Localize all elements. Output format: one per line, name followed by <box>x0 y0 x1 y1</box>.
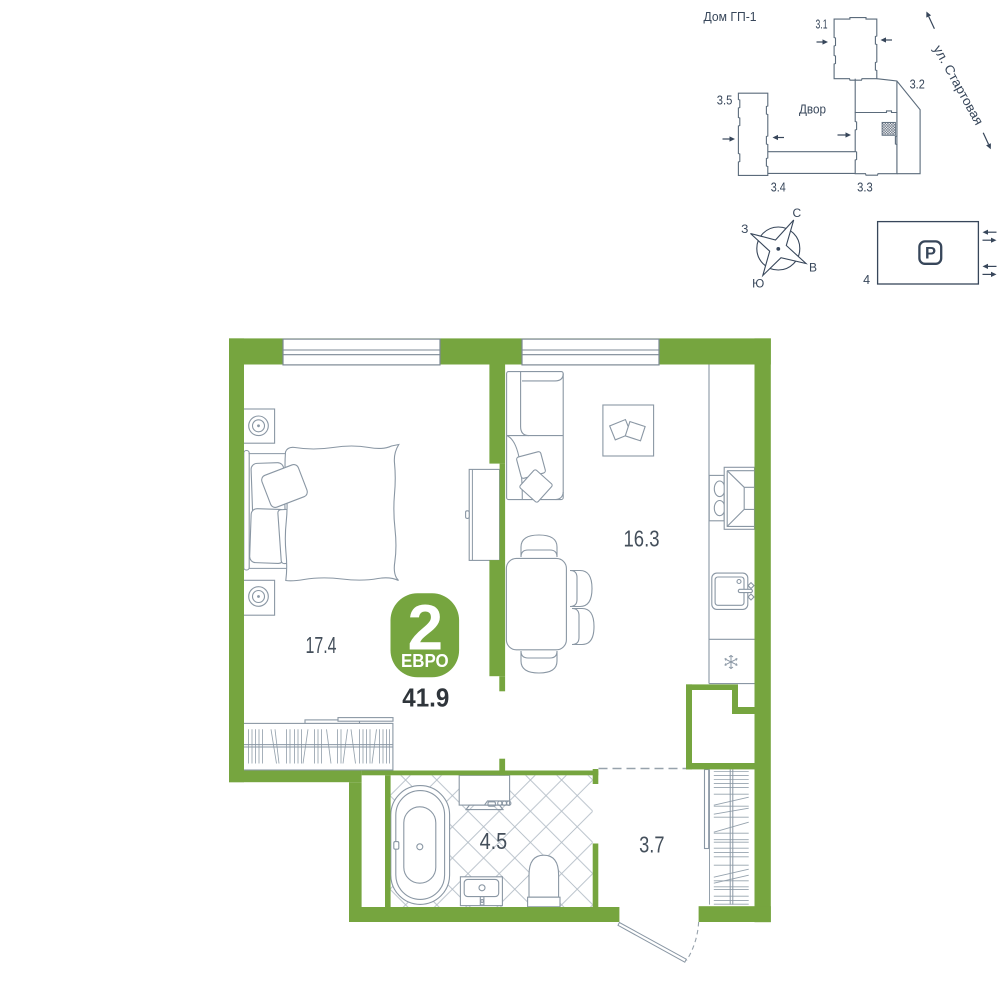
svg-text:3.5: 3.5 <box>717 93 733 108</box>
svg-text:3.3: 3.3 <box>857 179 873 194</box>
svg-text:4.5: 4.5 <box>480 828 508 854</box>
svg-text:3.2: 3.2 <box>910 77 925 92</box>
svg-text:41.9: 41.9 <box>402 683 449 713</box>
svg-text:Ю: Ю <box>752 276 764 290</box>
svg-text:P: P <box>925 245 936 263</box>
svg-text:В: В <box>809 260 817 274</box>
svg-text:З: З <box>741 222 748 236</box>
svg-text:16.3: 16.3 <box>624 525 660 551</box>
svg-text:Дом ГП-1: Дом ГП-1 <box>704 9 757 24</box>
svg-text:ЕВРО: ЕВРО <box>401 651 449 671</box>
svg-text:3.4: 3.4 <box>771 180 786 195</box>
svg-text:4: 4 <box>863 273 870 287</box>
svg-text:3.1: 3.1 <box>816 17 828 32</box>
svg-text:С: С <box>792 206 801 220</box>
svg-text:3.7: 3.7 <box>639 831 664 857</box>
svg-text:Двор: Двор <box>799 102 826 117</box>
svg-text:ул. Стартовая: ул. Стартовая <box>930 42 986 127</box>
svg-text:17.4: 17.4 <box>306 632 337 658</box>
